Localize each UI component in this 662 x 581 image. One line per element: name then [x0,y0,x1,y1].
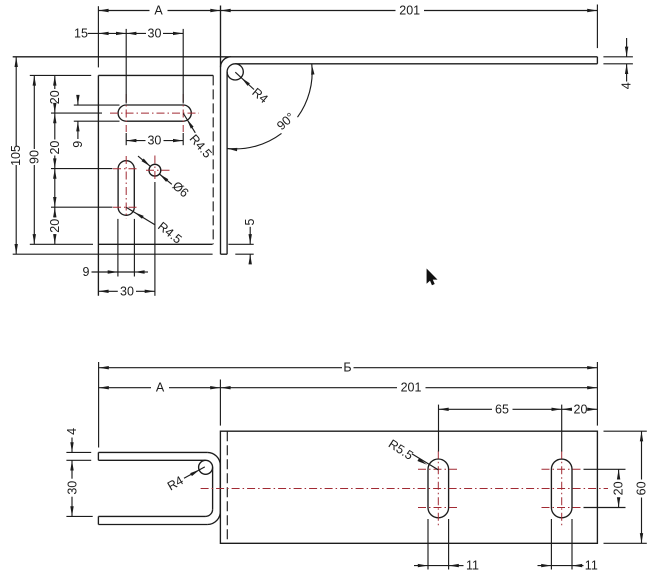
svg-text:201: 201 [399,4,420,18]
svg-text:90: 90 [27,150,41,164]
svg-text:30: 30 [148,26,162,40]
svg-text:A: A [156,381,165,395]
svg-text:60: 60 [635,481,649,495]
svg-text:15: 15 [74,26,88,40]
svg-text:105: 105 [9,145,23,166]
svg-text:20: 20 [48,141,62,155]
svg-text:20: 20 [574,402,588,416]
svg-text:4: 4 [65,428,79,435]
svg-text:11: 11 [585,559,598,573]
svg-text:20: 20 [612,481,626,495]
svg-text:30: 30 [66,481,80,495]
svg-text:9: 9 [71,141,85,148]
svg-text:20: 20 [48,219,62,233]
svg-text:201: 201 [401,381,422,395]
svg-text:5: 5 [243,218,257,225]
svg-text:30: 30 [120,284,134,298]
svg-text:Б: Б [343,361,351,375]
svg-text:4: 4 [620,82,634,89]
svg-text:9: 9 [83,265,90,279]
svg-text:20: 20 [48,90,62,104]
svg-text:11: 11 [466,559,479,573]
svg-text:30: 30 [147,134,161,148]
svg-text:65: 65 [495,402,509,416]
svg-text:A: A [154,4,163,18]
